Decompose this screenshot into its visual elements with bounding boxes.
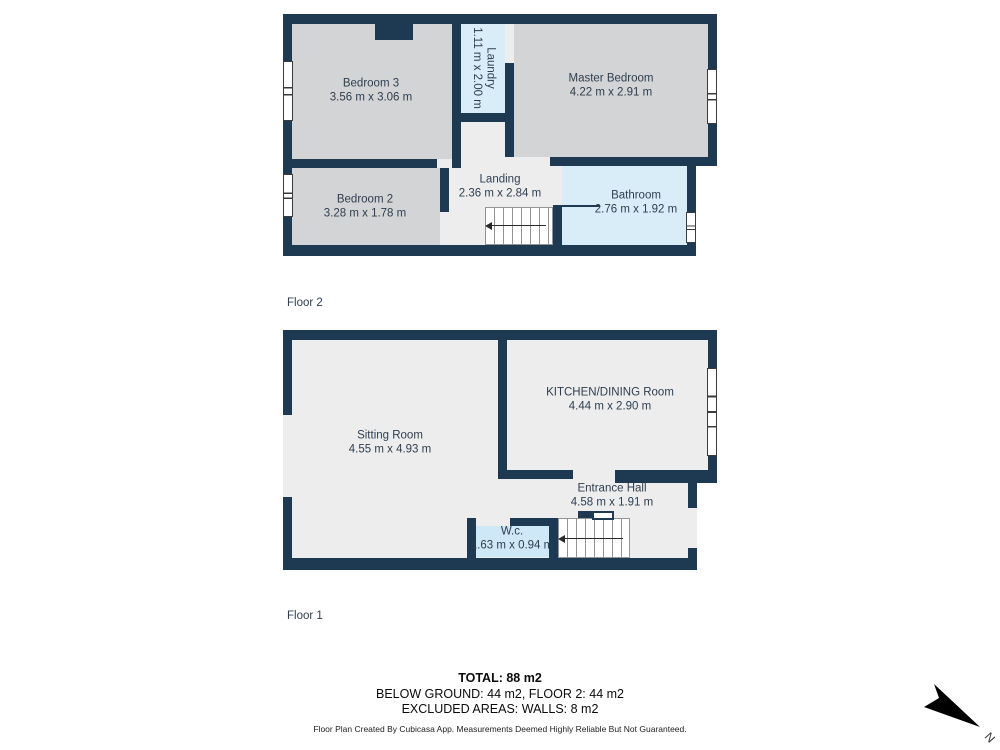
bedroom2-window-icon (283, 174, 293, 217)
floor2-stairs (485, 207, 553, 245)
floor1-left-wall-upper (283, 330, 292, 415)
kitchen-dining-label: KITCHEN/DINING Room 4.44 m x 2.90 m (546, 387, 674, 414)
floor2-tag: Floor 2 (287, 297, 323, 309)
landing-label: Landing 2.36 m x 2.84 m (459, 174, 541, 201)
bedroom3-label: Bedroom 3 3.56 m x 3.06 m (330, 78, 412, 105)
total-area-text: TOTAL: 88 m2 (0, 671, 1000, 685)
bedroom2-label: Bedroom 2 3.28 m x 1.78 m (324, 194, 406, 221)
room-name: Bedroom 2 (324, 194, 406, 208)
room-dims: 1.11 m x 2.00 m (470, 27, 484, 109)
room-dims: 4.58 m x 1.91 m (571, 496, 653, 510)
sitting-kitchen-divider-wall (498, 340, 507, 479)
north-arrow-icon: N (922, 683, 997, 745)
bathroom-label: Bathroom 2.76 m x 1.92 m (595, 190, 677, 217)
kitchen-bottom-wall-left (498, 470, 573, 479)
room-dims: 3.28 m x 1.78 m (324, 207, 406, 221)
laundry-label: Laundry 1.11 m x 2.00 m (470, 27, 497, 109)
room-name: Bathroom (595, 190, 677, 204)
bedroom3-window-icon (283, 61, 293, 121)
excluded-areas-text: EXCLUDED AREAS: WALLS: 8 m2 (0, 702, 1000, 716)
floor1-top-wall (283, 330, 717, 340)
sitting-room-label: Sitting Room 4.55 m x 4.93 m (349, 430, 431, 457)
bedroom3-bottom-wall (292, 159, 437, 168)
floor1-plan: Sitting Room 4.55 m x 4.93 m KITCHEN/DIN… (283, 330, 717, 570)
north-label: N (982, 730, 997, 745)
kitchen-bottom-wall-right (615, 470, 717, 483)
laundry-bottom-wall (452, 113, 514, 122)
room-dims: 2.36 m x 2.84 m (459, 187, 541, 201)
floor1-outside-patch (697, 483, 717, 570)
floor2-bottom-wall (283, 245, 700, 256)
floor1-bottom-wall (283, 558, 697, 570)
bathroom-left-wall (553, 205, 562, 245)
room-name: W.c. (471, 526, 553, 540)
area-breakdown-text: BELOW GROUND: 44 m2, FLOOR 2: 44 m2 (0, 687, 1000, 701)
stairs-direction-arrow (490, 225, 546, 226)
wc-label: W.c. 1.63 m x 0.94 m (471, 526, 553, 553)
bedroom3-right-wall (452, 24, 461, 168)
floor2-plan: Bedroom 3 3.56 m x 3.06 m Laundry 1.11 m… (283, 14, 717, 256)
master-bedroom-label: Master Bedroom 4.22 m x 2.91 m (568, 73, 653, 100)
room-name: Sitting Room (349, 430, 431, 444)
stairs-direction-arrow (563, 538, 623, 539)
room-dims: 4.44 m x 2.90 m (546, 400, 674, 414)
master-bottom-wall (550, 157, 717, 166)
room-name: Entrance Hall (571, 483, 653, 497)
room-name: Bedroom 3 (330, 78, 412, 92)
bathroom-window-icon (686, 212, 696, 243)
sitting-room-opening (283, 415, 292, 497)
floor2-left-wall (283, 14, 292, 256)
room-name: KITCHEN/DINING Room (546, 387, 674, 401)
floor2-top-wall (283, 14, 717, 24)
floor1-tag: Floor 1 (287, 610, 323, 622)
entrance-right-wall-lower (688, 548, 697, 570)
room-dims: 2.76 m x 1.92 m (595, 203, 677, 217)
floorplan-page: { "floor2": { "label": "Floor 2", "bedro… (0, 0, 1000, 750)
stairs-door-symbol (592, 511, 614, 520)
room-dims: 4.55 m x 4.93 m (349, 443, 431, 457)
bedroom2-right-wall (440, 168, 449, 212)
north-arrow-shape (924, 684, 980, 727)
master-window-icon (707, 69, 717, 124)
room-name: Landing (459, 174, 541, 188)
room-dims: 3.56 m x 3.06 m (330, 91, 412, 105)
entrance-hall-label: Entrance Hall 4.58 m x 1.91 m (571, 483, 653, 510)
laundry-right-wall (505, 63, 514, 157)
entrance-right-wall-upper (688, 479, 697, 508)
floor2-outside-patch (696, 166, 717, 256)
room-name: Master Bedroom (568, 73, 653, 87)
bedroom3-chimney-notch (375, 24, 413, 40)
room-dims: 1.63 m x 0.94 m (471, 539, 553, 553)
area-summary: TOTAL: 88 m2 BELOW GROUND: 44 m2, FLOOR … (0, 671, 1000, 716)
room-name: Laundry (483, 27, 497, 109)
kitchen-window-icon (707, 368, 717, 456)
room-dims: 4.22 m x 2.91 m (568, 86, 653, 100)
disclaimer-text: Floor Plan Created By Cubicasa App. Meas… (0, 724, 1000, 734)
floor1-stairs (558, 518, 630, 558)
